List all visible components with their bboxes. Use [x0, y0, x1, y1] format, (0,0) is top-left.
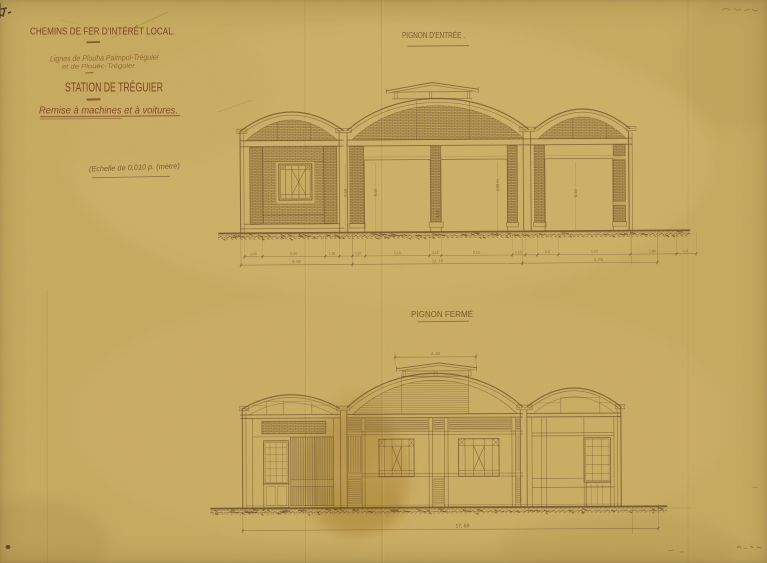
svg-text:1,00: 1,00 [649, 249, 656, 253]
svg-text:Remise à machines et à voiture: Remise à machines et à voitures. [39, 105, 178, 117]
svg-text:5,10: 5,10 [473, 250, 480, 254]
svg-text:5,10: 5,10 [343, 188, 348, 197]
svg-text:Lignes de Plouha Paimpol-Trégu: Lignes de Plouha Paimpol-Tréguier [50, 53, 159, 64]
svg-text:17, 50: 17, 50 [455, 523, 469, 529]
svg-text:1,10: 1,10 [515, 250, 522, 254]
svg-text:1,10: 1,10 [329, 251, 336, 255]
svg-text:5,10: 5,10 [373, 188, 378, 197]
svg-text:et de Plouëc-Tréguier: et de Plouëc-Tréguier [62, 63, 136, 71]
svg-text:1,0: 1,0 [683, 249, 688, 253]
svg-text:5,10: 5,10 [394, 251, 401, 255]
svg-text:5,00: 5,00 [290, 252, 297, 256]
svg-text:0,8: 0,8 [545, 250, 550, 254]
svg-text:4,00 m: 4,00 m [495, 179, 500, 192]
svg-text:5, 93: 5, 93 [594, 257, 604, 262]
svg-text:5,50: 5,50 [591, 250, 598, 254]
svg-text:1,50: 1,50 [250, 252, 257, 256]
svg-text:5,10: 5,10 [573, 188, 578, 197]
svg-text:4, 60: 4, 60 [431, 351, 441, 356]
svg-text:CHEMINS DE FER D'INTÉRÊT L: CHEMINS DE FER D'INTÉRÊT LOCAL. [30, 25, 175, 38]
svg-text:1,10: 1,10 [432, 251, 439, 255]
svg-text:PIGNON FERMÉ: PIGNON FERMÉ [411, 309, 473, 319]
svg-text:1,07: 1,07 [355, 251, 362, 255]
svg-text:12, 10: 12, 10 [432, 258, 444, 263]
svg-text:PIGNON D'ENTRÉE .: PIGNON D'ENTRÉE . [402, 30, 465, 40]
svg-text:4,00: 4,00 [435, 209, 440, 218]
svg-text:STATION DE TRÉGUIER: STATION DE TRÉGUIER [65, 80, 163, 95]
svg-text:9, 50: 9, 50 [292, 259, 302, 264]
